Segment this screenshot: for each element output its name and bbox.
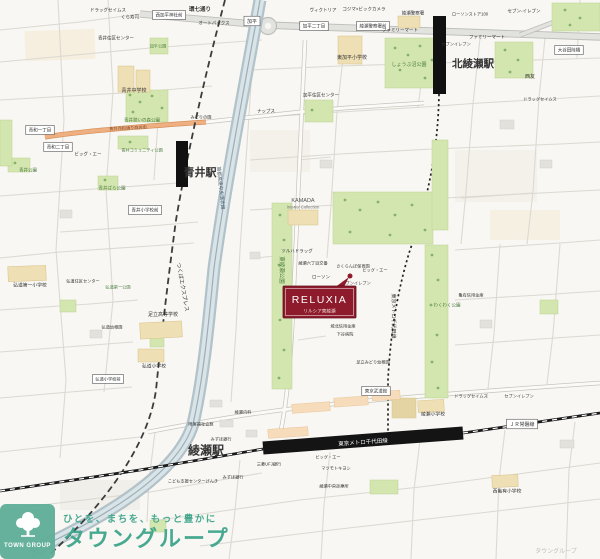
map-label: 三菱UFJ銀行	[257, 461, 281, 468]
svg-text:西友: 西友	[525, 73, 535, 80]
map-label: くら寿司	[121, 14, 139, 21]
svg-text:加平公園: 加平公園	[150, 43, 167, 50]
svg-text:ビッグ・エー: ビッグ・エー	[75, 151, 102, 158]
svg-text:城北信用金庫: 城北信用金庫	[330, 323, 355, 330]
town-group-logo-badge: TOWN GROUP	[0, 504, 55, 559]
map-label: 青井憩いの森公園	[124, 117, 160, 124]
svg-text:綾瀬中央診療所: 綾瀬中央診療所	[319, 483, 348, 490]
svg-text:しょうぶ沼公園: しょうぶ沼公園	[391, 61, 426, 68]
map-label: 青井中学校	[121, 87, 146, 94]
svg-text:ＪＲ常磐線: ＪＲ常磐線	[509, 421, 534, 428]
map-label: 東加平小学校	[337, 54, 367, 61]
map-label: 青井ばら公園	[99, 185, 126, 192]
map-label: ビッグ・エー	[315, 454, 340, 461]
map-label: こども支援センターげんき	[168, 478, 218, 485]
svg-text:下谷病院: 下谷病院	[337, 331, 355, 338]
map-label: 加平住区センター	[303, 92, 339, 99]
ayase-station-label: 綾瀬駅	[188, 442, 225, 457]
svg-text:青井兵和通り商店街: 青井兵和通り商店街	[109, 124, 147, 133]
tokyo-budokan-building	[392, 398, 416, 418]
map-label: みどりの園	[191, 114, 212, 121]
map-label: ドラッグセイムス	[523, 96, 556, 103]
svg-text:加平: 加平	[247, 18, 257, 25]
map-label: コジマ×ビックカメラ	[342, 6, 385, 13]
svg-text:東京メトロ千代田線: 東京メトロ千代田線	[390, 293, 397, 338]
svg-text:みどりの園: みどりの園	[191, 114, 212, 121]
marker-subtitle: リルシア東綾瀬	[303, 308, 336, 315]
svg-text:弘道第一小学校: 弘道第一小学校	[13, 282, 47, 289]
ayase-police-station-building	[398, 16, 420, 28]
map-label: みずほ銀行	[211, 436, 232, 443]
parks	[0, 3, 600, 532]
svg-text:青井小学校前: 青井小学校前	[132, 207, 159, 214]
map-label: 青井小学校前	[129, 206, 162, 215]
jr-joban-line-label: ＪＲ常磐線	[507, 419, 538, 429]
map-label: ローソン	[312, 275, 330, 280]
svg-text:Interior Collection: Interior Collection	[287, 205, 320, 210]
map-label: 弘道住区センター	[66, 278, 100, 285]
map-label: 西亀有小学校	[493, 488, 522, 495]
higashi-ayase-park-east	[425, 245, 448, 398]
map-label: 下谷病院	[337, 331, 355, 338]
svg-text:東綾瀬公園: 東綾瀬公園	[278, 256, 286, 284]
svg-text:ヴィクトリア: ヴィクトリア	[310, 7, 337, 14]
svg-text:セブンイレブン: セブンイレブン	[504, 393, 533, 399]
svg-text:ローソン: ローソン	[312, 275, 330, 280]
svg-text:足立高等学校: 足立高等学校	[148, 311, 178, 318]
svg-text:青井中学校: 青井中学校	[121, 87, 146, 94]
chiyoda-line-label: 東京メトロ千代田線	[390, 293, 397, 338]
svg-text:みずほ銀行: みずほ銀行	[223, 474, 244, 481]
svg-text:三菱UFJ銀行: 三菱UFJ銀行	[257, 461, 281, 468]
svg-text:ビッグ・エー: ビッグ・エー	[362, 267, 387, 274]
svg-text:つくばエクスプレス: つくばエクスプレス	[175, 262, 191, 312]
svg-text:青井コミュニティ公園: 青井コミュニティ公園	[121, 147, 163, 154]
map-label: Interior Collection	[287, 205, 320, 210]
svg-text:綾瀬警察署: 綾瀬警察署	[402, 10, 425, 17]
svg-text:セブンイレブン: セブンイレブン	[441, 41, 470, 47]
corner-watermark: タウングループ	[535, 547, 577, 555]
svg-text:亀有信用金庫: 亀有信用金庫	[458, 292, 483, 299]
map-label: 大谷田陸橋	[555, 46, 584, 55]
map-label: ドラッグセイムス	[454, 393, 487, 400]
tsukuba-express-label: つくばエクスプレス	[175, 262, 191, 312]
map-label: 加平二丁目	[300, 22, 329, 31]
svg-text:みずほ銀行: みずほ銀行	[211, 436, 232, 443]
svg-text:弘道小学校: 弘道小学校	[142, 363, 166, 370]
map-label: ローソンストア100	[452, 12, 489, 18]
map-label: オートバックス	[198, 21, 230, 27]
kamada-interior-building	[288, 210, 318, 225]
svg-text:ドラッグセイムス: ドラッグセイムス	[90, 7, 126, 14]
aoi-station-label: 青井駅	[184, 165, 217, 179]
town-group-watermark: TOWN GROUP ひとを、まちを、もっと豊かに タウングループ	[0, 504, 230, 559]
kita-ayase-station-marker	[433, 16, 446, 94]
svg-text:東京武道館: 東京武道館	[365, 388, 388, 395]
map-label: みずほ銀行	[223, 474, 244, 481]
map-label: 綾瀬内科	[235, 409, 253, 416]
map-label: ビッグ・エー	[75, 151, 102, 158]
adachi-high-school-building	[140, 321, 183, 339]
svg-text:東加平小学校: 東加平小学校	[337, 54, 367, 61]
map-label: 青井住区センター	[98, 35, 134, 42]
svg-text:綾瀬小学校: 綾瀬小学校	[421, 411, 445, 418]
svg-text:オートバックス: オートバックス	[198, 21, 230, 27]
location-map-image[interactable]: ドラッグセイムスくら寿司西加平神社前環七通りオートバックス加平ヴィクトリアコジマ…	[0, 0, 600, 559]
map-label: 障害福祉会館	[188, 421, 213, 428]
map-label: ファミリーマート	[469, 35, 505, 41]
map-label: 青和二丁目	[44, 143, 73, 152]
svg-text:タウングループ: タウングループ	[535, 547, 577, 555]
svg-text:加平二丁目: 加平二丁目	[303, 23, 326, 30]
map-label: 西加平神社前	[153, 11, 186, 20]
svg-text:ツルハドラッグ: ツルハドラッグ	[281, 248, 313, 255]
svg-text:KAMADA: KAMADA	[291, 198, 315, 204]
map-label: ツルハドラッグ	[281, 248, 313, 255]
higashi-ayase-park-label: 東綾瀬公園	[278, 256, 286, 284]
map-label: セブンイレブン	[504, 393, 533, 399]
svg-text:青井憩いの森公園: 青井憩いの森公園	[124, 117, 160, 124]
svg-text:セブン-イレブン: セブン-イレブン	[508, 8, 541, 14]
map-label: 亀有信用金庫	[458, 292, 483, 299]
map-label: 足立高等学校	[148, 311, 178, 318]
higashi-ayase-park-north	[333, 192, 433, 244]
map-label: しょうぶ沼公園	[391, 61, 426, 68]
map-label: 綾瀬中央診療所	[319, 483, 348, 490]
svg-text:ドラッグセイムス: ドラッグセイムス	[454, 393, 487, 400]
svg-text:ローソンストア100: ローソンストア100	[452, 12, 489, 18]
marker-title: RELUXIA	[292, 294, 347, 306]
svg-text:環七通り: 環七通り	[189, 5, 211, 13]
map-label: 加平公園	[150, 43, 167, 50]
svg-text:西亀有小学校: 西亀有小学校	[493, 488, 522, 495]
svg-text:障害福祉会館: 障害福祉会館	[188, 421, 213, 428]
map-label: ドラッグセイムス	[90, 7, 126, 14]
svg-text:ファミリーマート: ファミリーマート	[469, 35, 505, 41]
svg-text:くら寿司: くら寿司	[121, 14, 139, 21]
svg-text:ドラッグセイムス: ドラッグセイムス	[523, 96, 556, 103]
aoi-station-marker	[176, 141, 188, 187]
map-label: 弘道幼稚園	[102, 324, 123, 331]
tree-icon	[11, 508, 45, 542]
svg-text:加平住区センター: 加平住区センター	[303, 92, 339, 99]
svg-text:青井駅: 青井駅	[184, 165, 217, 179]
map-label: セブンイレブン	[441, 41, 470, 47]
map-label: マツモトキヨシ	[321, 466, 350, 472]
svg-text:綾瀬駅: 綾瀬駅	[188, 442, 225, 457]
svg-text:青井公園: 青井公園	[19, 167, 37, 174]
svg-text:弘道住区センター: 弘道住区センター	[66, 278, 100, 285]
kahei-ic-label: 加平	[244, 16, 260, 26]
svg-text:マツモトキヨシ: マツモトキヨシ	[321, 466, 350, 472]
brand-name: タウングループ	[63, 527, 230, 550]
map-label: 綾瀬警察署	[402, 10, 425, 17]
map-label: セブン-イレブン	[508, 8, 541, 14]
map-label: 青井公園	[19, 167, 37, 174]
svg-text:北綾瀬駅: 北綾瀬駅	[452, 57, 494, 70]
map-label: 綾瀬六丁目交番	[298, 260, 328, 267]
map-label: 弘道第一公園	[105, 284, 130, 291]
map-label: 青井コミュニティ公園	[121, 147, 163, 154]
map-label: 足立みどり幼稚園	[356, 359, 390, 366]
svg-text:西加平神社前: 西加平神社前	[156, 12, 183, 19]
svg-text:弘道第一公園: 弘道第一公園	[105, 284, 130, 291]
map-canvas: ドラッグセイムスくら寿司西加平神社前環七通りオートバックス加平ヴィクトリアコジマ…	[0, 0, 600, 559]
map-label: 青和一丁目	[26, 126, 55, 135]
tokyo-budokan-label: 東京武道館	[362, 387, 391, 396]
map-label: 城北信用金庫	[330, 323, 355, 330]
svg-text:弘道幼稚園: 弘道幼稚園	[102, 324, 123, 331]
map-label: ヴィクトリア	[310, 7, 337, 14]
svg-text:青井ばら公園: 青井ばら公園	[99, 185, 126, 192]
map-label: 青井兵和通り商店街	[109, 124, 147, 133]
svg-text:綾瀬六丁目交番: 綾瀬六丁目交番	[298, 260, 328, 267]
kannana-dori-label: 環七通り	[189, 5, 211, 13]
svg-text:コジマ×ビックカメラ: コジマ×ビックカメラ	[342, 6, 385, 13]
map-label: 弘道第一小学校	[13, 282, 47, 289]
svg-text:ビッグ・エー: ビッグ・エー	[315, 454, 340, 461]
svg-text:こども支援センターげんき: こども支援センターげんき	[168, 478, 218, 485]
svg-text:大谷田陸橋: 大谷田陸橋	[558, 47, 581, 54]
svg-text:わくわく公園: わくわく公園	[434, 302, 461, 309]
svg-text:青和二丁目: 青和二丁目	[47, 144, 70, 151]
map-label: 綾瀬小学校	[421, 411, 445, 418]
map-label: KAMADA	[291, 198, 315, 204]
logo-english-text: TOWN GROUP	[4, 543, 51, 549]
kita-ayase-station-label: 北綾瀬駅	[452, 57, 494, 70]
brand-tagline: ひとを、まちを、もっと豊かに	[63, 511, 230, 525]
map-label: 弘道小学校	[142, 363, 166, 370]
svg-text:青和一丁目: 青和一丁目	[29, 127, 52, 134]
svg-text:綾瀬内科: 綾瀬内科	[235, 409, 253, 416]
svg-text:弘道小学校前: 弘道小学校前	[95, 376, 120, 383]
map-label: 西友	[525, 73, 535, 80]
map-label: 弘道小学校前	[92, 375, 123, 384]
map-label: わくわく公園	[434, 302, 461, 309]
svg-text:足立みどり幼稚園: 足立みどり幼稚園	[356, 359, 390, 366]
map-label: ビッグ・エー	[362, 267, 387, 274]
svg-text:青井住区センター: 青井住区センター	[98, 35, 134, 42]
